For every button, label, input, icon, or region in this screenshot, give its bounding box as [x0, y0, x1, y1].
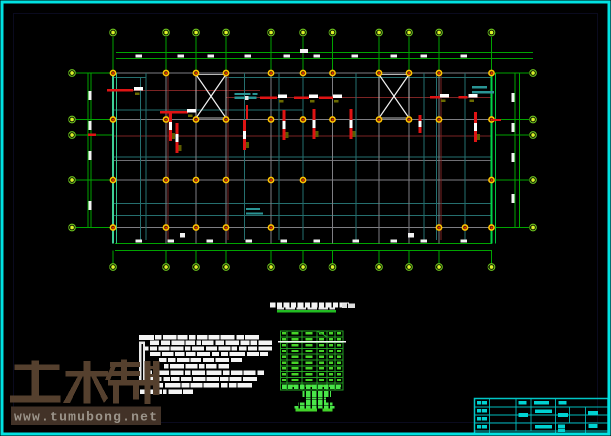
svg-text:www.tumubong.net: www.tumubong.net [14, 410, 157, 425]
